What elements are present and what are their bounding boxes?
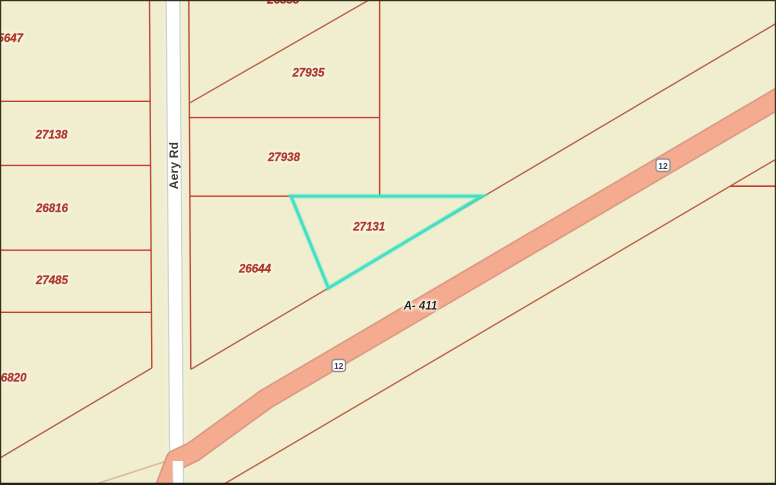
svg-text:26816: 26816 — [35, 203, 69, 215]
svg-text:27131: 27131 — [352, 222, 385, 234]
svg-text:A- 411: A- 411 — [403, 300, 438, 312]
svg-text:27938: 27938 — [267, 152, 301, 164]
svg-text:27138: 27138 — [35, 130, 69, 142]
svg-text:27935: 27935 — [292, 68, 326, 80]
svg-text:27485: 27485 — [35, 275, 69, 287]
svg-text:12: 12 — [334, 361, 344, 371]
svg-text:Aery Rd: Aery Rd — [167, 142, 181, 189]
svg-text:26644: 26644 — [238, 263, 272, 275]
svg-text:16820: 16820 — [0, 373, 27, 385]
svg-text:5647: 5647 — [0, 33, 24, 45]
svg-text:12: 12 — [658, 161, 668, 171]
